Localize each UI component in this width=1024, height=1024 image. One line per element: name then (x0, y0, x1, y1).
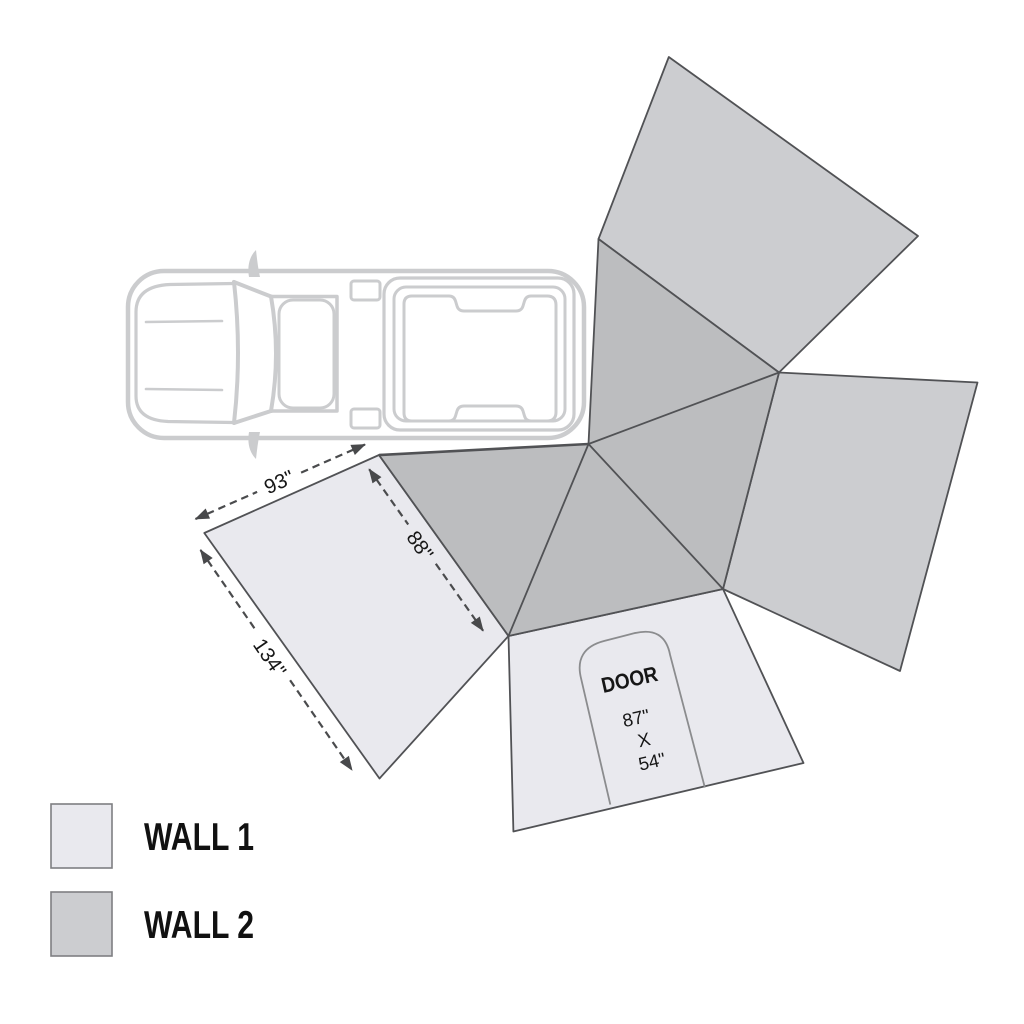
svg-text:WALL 1: WALL 1 (144, 816, 254, 859)
svg-text:WALL 2: WALL 2 (144, 904, 254, 947)
